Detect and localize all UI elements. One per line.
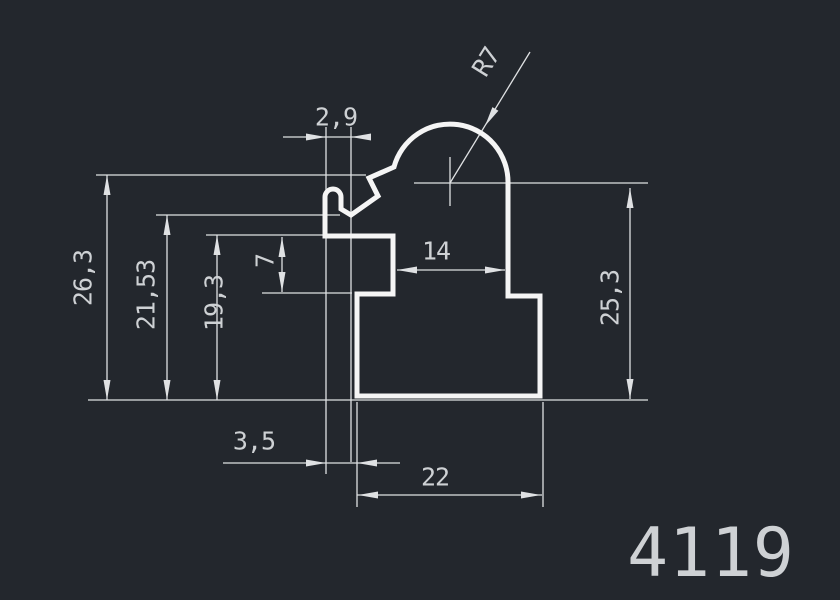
dimension-lines bbox=[107, 52, 630, 495]
arrow-14-left bbox=[397, 267, 417, 274]
arrow-21-53-down bbox=[164, 380, 171, 400]
dim-label-26-3: 26,3 bbox=[71, 250, 96, 306]
arrow-2-9-right bbox=[351, 134, 371, 141]
dim-label-25-3: 25,3 bbox=[598, 270, 623, 326]
drawing-geometry bbox=[0, 0, 840, 600]
dim-label-19-3: 19,3 bbox=[202, 275, 227, 331]
arrow-21-53-up bbox=[164, 215, 171, 235]
arrow-25-3-up bbox=[627, 188, 634, 208]
dim-label-7: 7 bbox=[253, 254, 278, 268]
arrow-26-3-down bbox=[104, 380, 111, 400]
dim-label-3-5: 3,5 bbox=[233, 429, 275, 454]
dim-label-14: 14 bbox=[422, 239, 450, 264]
arrow-14-right bbox=[485, 267, 505, 274]
dim-label-21-53: 21,53 bbox=[134, 260, 159, 330]
arrow-26-3-up bbox=[104, 175, 111, 195]
arrow-22-left bbox=[358, 492, 378, 499]
extension-lines bbox=[88, 127, 648, 507]
arrow-3-5-right bbox=[357, 460, 377, 467]
dim-label-2-9: 2,9 bbox=[315, 105, 357, 130]
arrow-3-5-left bbox=[306, 460, 326, 467]
arrow-19-3-down bbox=[214, 380, 221, 400]
arrow-radius-leader bbox=[485, 107, 498, 126]
arrow-22-right bbox=[521, 492, 541, 499]
arrow-25-3-down bbox=[627, 379, 634, 399]
arrow-2-9-left bbox=[306, 134, 326, 141]
part-number-label: 4119 bbox=[627, 520, 795, 588]
arrow-7-up bbox=[279, 237, 286, 257]
dim-label-22: 22 bbox=[421, 465, 449, 490]
cad-canvas[interactable]: 2,9 R7 26,3 21,53 19,3 7 14 25,3 3,5 22 … bbox=[0, 0, 840, 600]
dimension-arrows bbox=[104, 107, 634, 498]
arrow-7-down bbox=[279, 272, 286, 292]
arrow-19-3-up bbox=[214, 235, 221, 255]
